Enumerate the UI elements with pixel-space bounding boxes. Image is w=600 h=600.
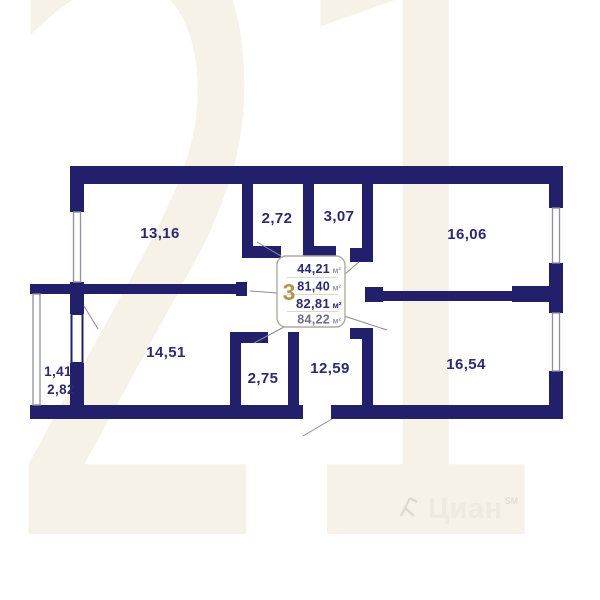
wall [70, 166, 560, 184]
leader-line [345, 262, 359, 274]
brand-logo-icon [398, 494, 420, 520]
room-area-label: 2,75 [248, 370, 279, 387]
wall [350, 328, 373, 339]
room-area-label: 12,59 [310, 360, 350, 377]
wall [230, 332, 268, 343]
entrance-door-swing-line [303, 419, 332, 436]
area-value: 81,40 [297, 280, 330, 294]
window [553, 208, 560, 263]
brand-sm-mark: SM [505, 496, 519, 506]
wall [30, 405, 303, 419]
room-labels: 13,16 2,72 3,07 16,06 14,51 2,75 12,59 1… [44, 208, 487, 397]
area-unit: м² [333, 300, 342, 310]
wall [365, 287, 383, 302]
balcony-door-leaf [72, 314, 83, 363]
room-area-label: 3,07 [324, 208, 355, 225]
room-area-label: 2,72 [262, 210, 293, 227]
wall [512, 286, 560, 302]
window [74, 212, 81, 282]
window [553, 313, 560, 371]
wall [362, 184, 373, 262]
area-unit: м² [333, 284, 342, 293]
wall [30, 284, 247, 294]
brand-name: Циан [428, 494, 503, 526]
balcony-area-label: 1,41 [44, 364, 72, 379]
area-value: 44,21 [297, 262, 330, 276]
wall [236, 282, 247, 296]
wall [303, 184, 314, 258]
area-summary-box: 3 44,21 м² 81,40 м² 82,81 м² 84,22 м² [277, 256, 345, 327]
wall [362, 339, 373, 405]
door-swing-line [84, 306, 98, 329]
room-area-label: 16,54 [446, 356, 486, 373]
rooms-count: 3 [283, 279, 296, 305]
floorplan-image: 21 [0, 0, 600, 600]
area-value-total: 82,81 [296, 296, 330, 311]
balcony-window [33, 294, 40, 405]
leader-line [250, 291, 277, 293]
wall [549, 166, 563, 208]
wall [242, 246, 281, 258]
area-unit: м² [333, 317, 342, 326]
area-value: 84,22 [297, 313, 330, 327]
wall [331, 405, 563, 419]
area-unit: м² [333, 266, 342, 275]
balcony-area-label: 2,82 [47, 382, 75, 397]
room-area-label: 13,16 [140, 225, 180, 242]
wall [288, 332, 299, 405]
brand-watermark: Циан SM [398, 494, 518, 526]
leader-line [344, 316, 387, 330]
room-area-label: 16,06 [447, 226, 487, 243]
wall [350, 248, 362, 262]
wall [70, 166, 84, 212]
room-area-label: 14,51 [146, 344, 186, 361]
